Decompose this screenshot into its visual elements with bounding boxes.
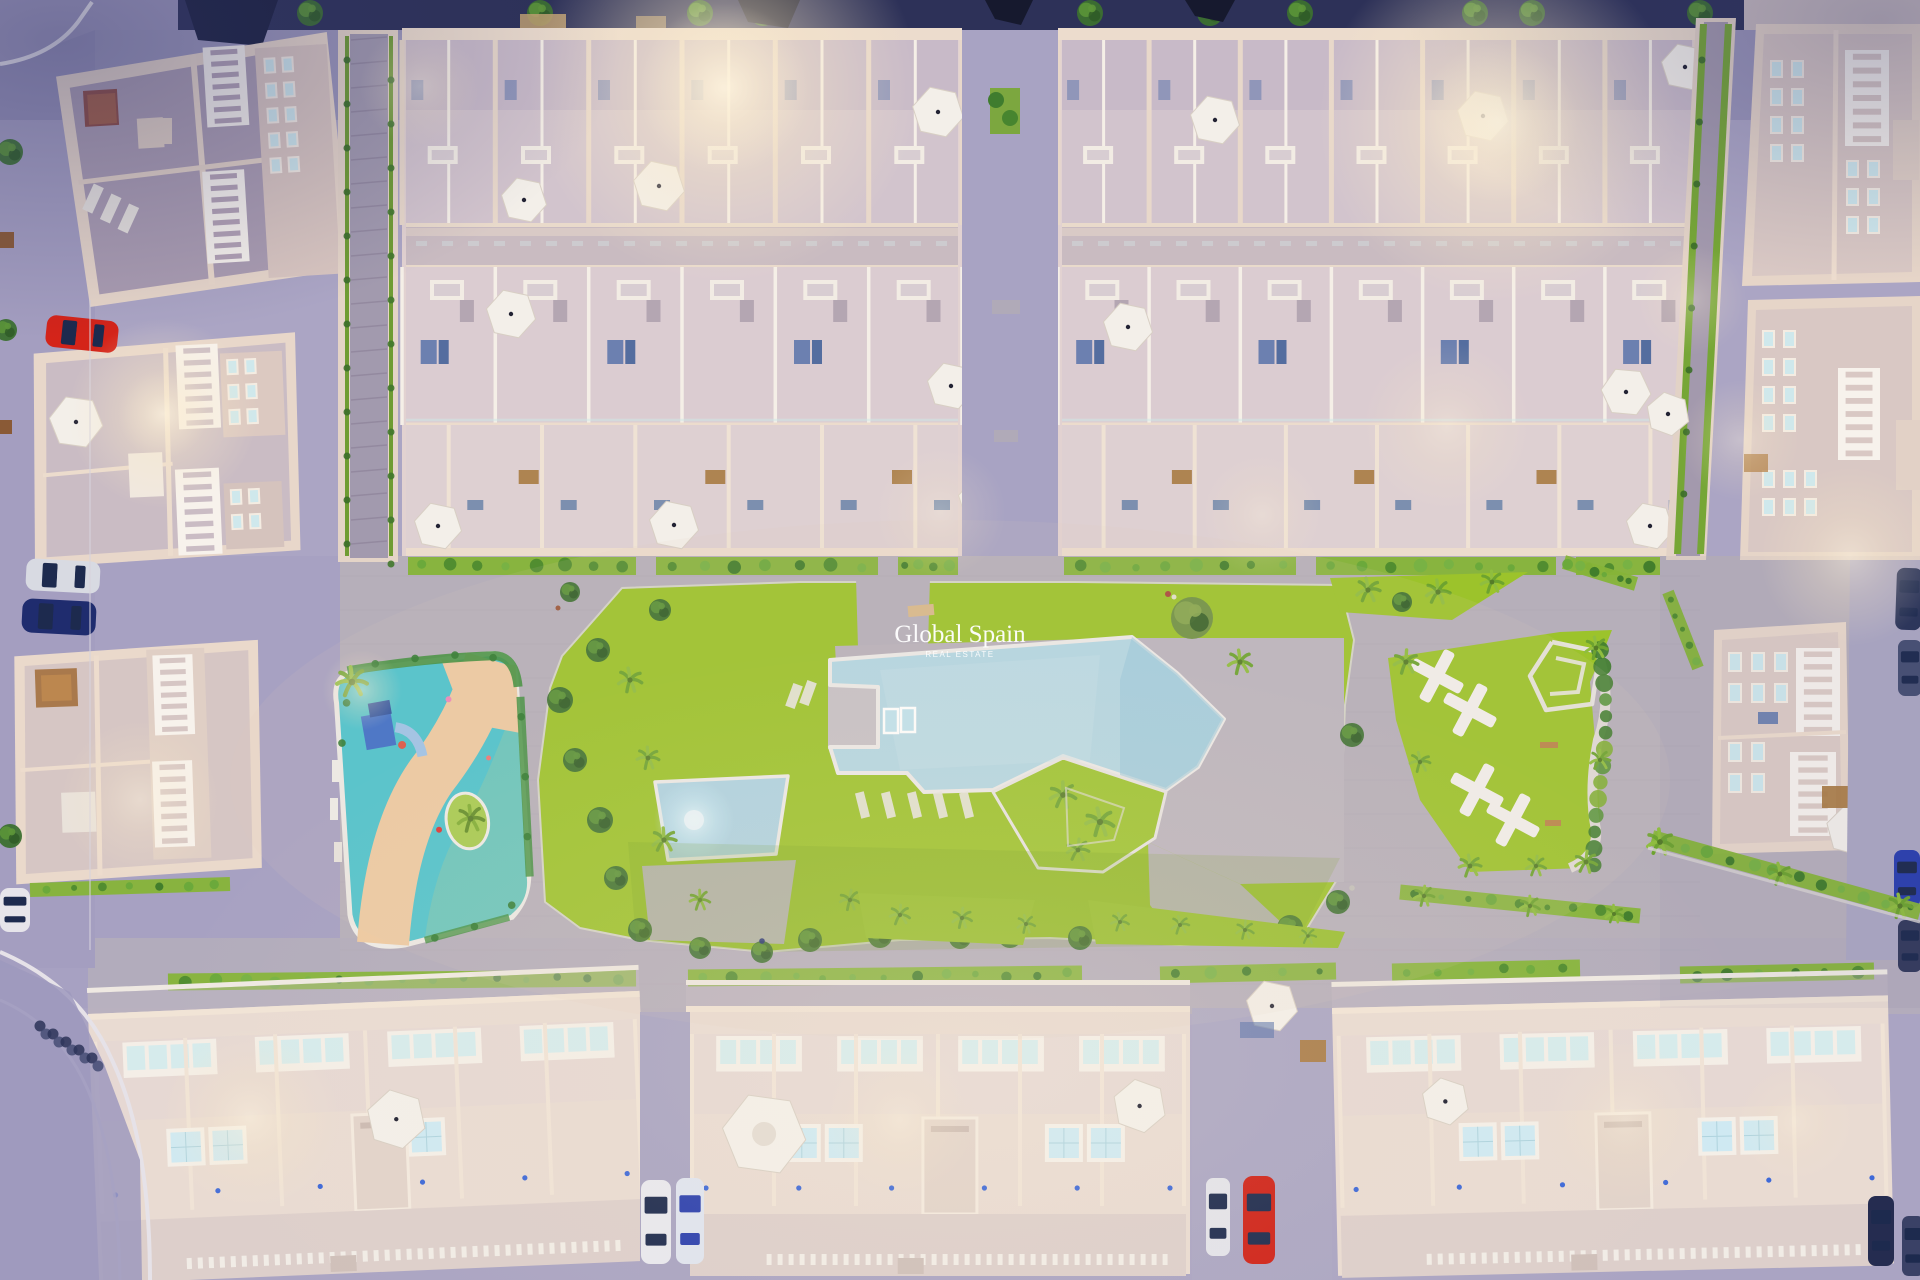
svg-text:REAL ESTATE: REAL ESTATE [925, 650, 994, 659]
svg-text:Global Spain: Global Spain [894, 621, 1026, 648]
